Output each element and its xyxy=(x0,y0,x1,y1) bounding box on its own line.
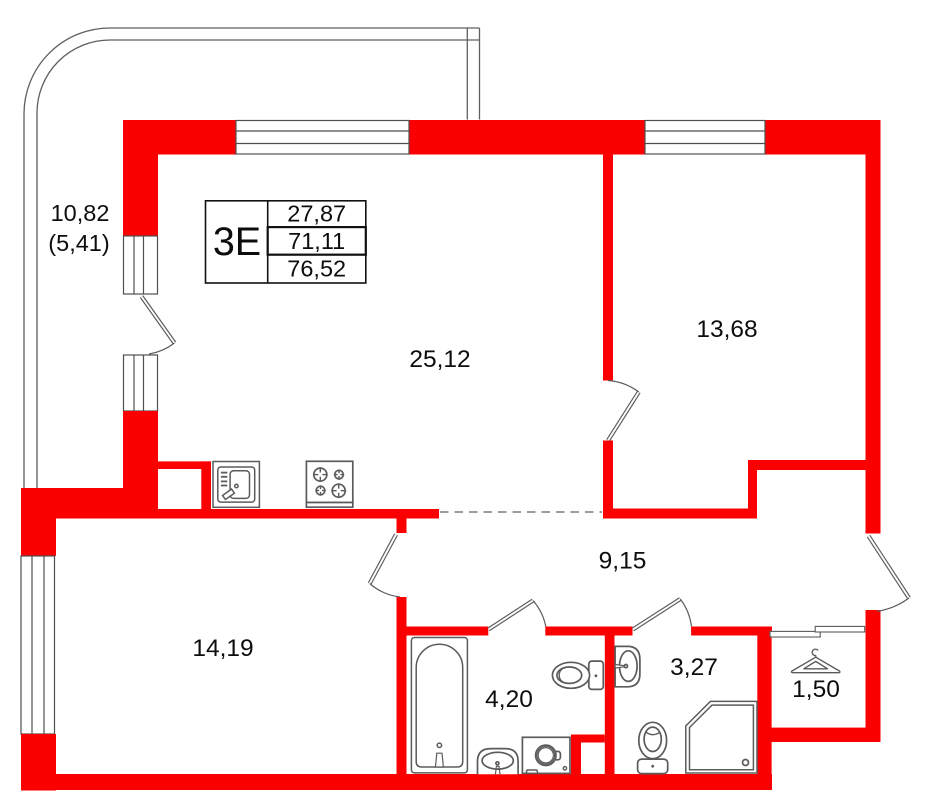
svg-text:13,68: 13,68 xyxy=(696,316,757,343)
svg-text:(5,41): (5,41) xyxy=(48,230,109,256)
svg-text:76,52: 76,52 xyxy=(287,256,346,282)
svg-text:71,11: 71,11 xyxy=(288,228,345,254)
svg-text:14,19: 14,19 xyxy=(192,635,253,662)
svg-text:3,27: 3,27 xyxy=(670,654,718,681)
svg-text:10,82: 10,82 xyxy=(51,200,110,226)
svg-text:27,87: 27,87 xyxy=(287,201,346,227)
svg-text:25,12: 25,12 xyxy=(409,346,470,373)
svg-text:4,20: 4,20 xyxy=(485,686,533,713)
svg-text:9,15: 9,15 xyxy=(599,548,647,575)
svg-text:1,50: 1,50 xyxy=(792,676,840,703)
svg-text:3Е: 3Е xyxy=(213,220,261,264)
